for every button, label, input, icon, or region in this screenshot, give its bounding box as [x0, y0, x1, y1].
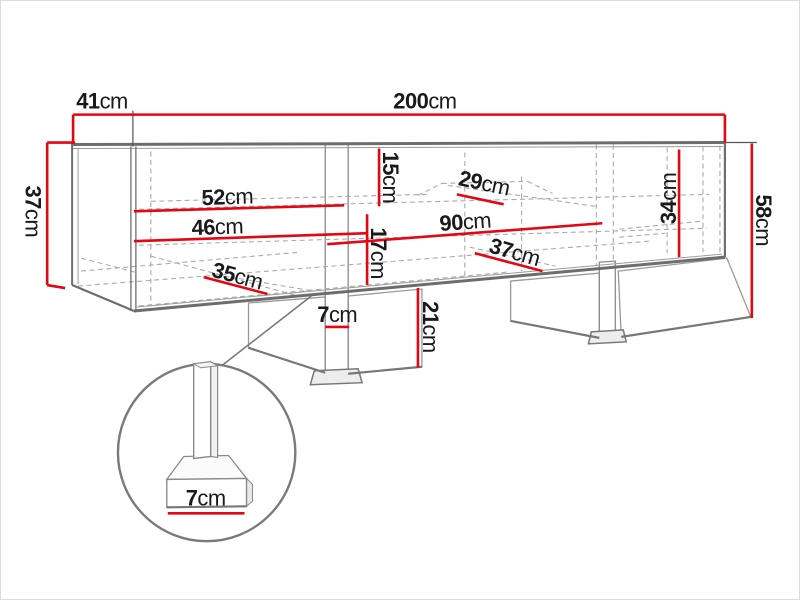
right-leg-panel-left	[511, 273, 600, 338]
dim-leg-height-label: 21cm	[418, 301, 443, 353]
dim-middle-lower-height-label: 17cm	[366, 227, 391, 279]
dim-tick-body-height-bottom	[47, 285, 65, 288]
foot-blade-side	[211, 362, 218, 458]
top-edge-inner	[72, 147, 723, 149]
diagram-canvas: 41cm 200cm 37cm 58cm 34cm 15cm 17cm 21cm…	[0, 0, 800, 600]
left-divider-column	[325, 145, 348, 375]
hidden-bottom-edge	[619, 233, 665, 237]
dim-middle-top-height-label: 15cm	[378, 152, 403, 204]
hidden-bottom-edge	[81, 252, 300, 271]
extension-lines	[133, 111, 757, 147]
dim-body-height-label: 37cm	[20, 185, 45, 237]
cabinet-bottom-left-edge	[72, 285, 134, 311]
dim-right-inner-height-label: 34cm	[656, 173, 681, 225]
dim-foot-width-label: 7cm	[186, 485, 226, 510]
dim-middle-width-label: 90cm	[439, 207, 492, 236]
foot-blade-front	[194, 362, 211, 459]
dim-left-shelf-upper-label: 52cm	[201, 183, 253, 210]
dim-total-height-label: 58cm	[751, 194, 776, 246]
dim-left-bottom-depth-label: 35cm	[209, 257, 265, 295]
dim-width-label: 200cm	[393, 89, 456, 114]
dim-middle-bottom-depth-label: 37cm	[486, 233, 542, 271]
cabinet-top-edge	[71, 143, 725, 145]
hidden-depth-edge	[418, 183, 442, 195]
hidden-depth-edge	[528, 181, 553, 193]
dim-divider-width-label: 7cm	[317, 302, 357, 327]
furniture-dimension-diagram: 41cm 200cm 37cm 58cm 34cm 15cm 17cm 21cm…	[0, 0, 800, 600]
hidden-depth-edge	[81, 258, 135, 272]
right-leg-column	[599, 261, 615, 337]
dim-depth-label: 41cm	[76, 89, 128, 114]
right-leg-panel-right	[618, 258, 751, 337]
dim-left-shelf-lower-label: 46cm	[191, 213, 243, 240]
left-leg-panel-right	[348, 289, 422, 374]
